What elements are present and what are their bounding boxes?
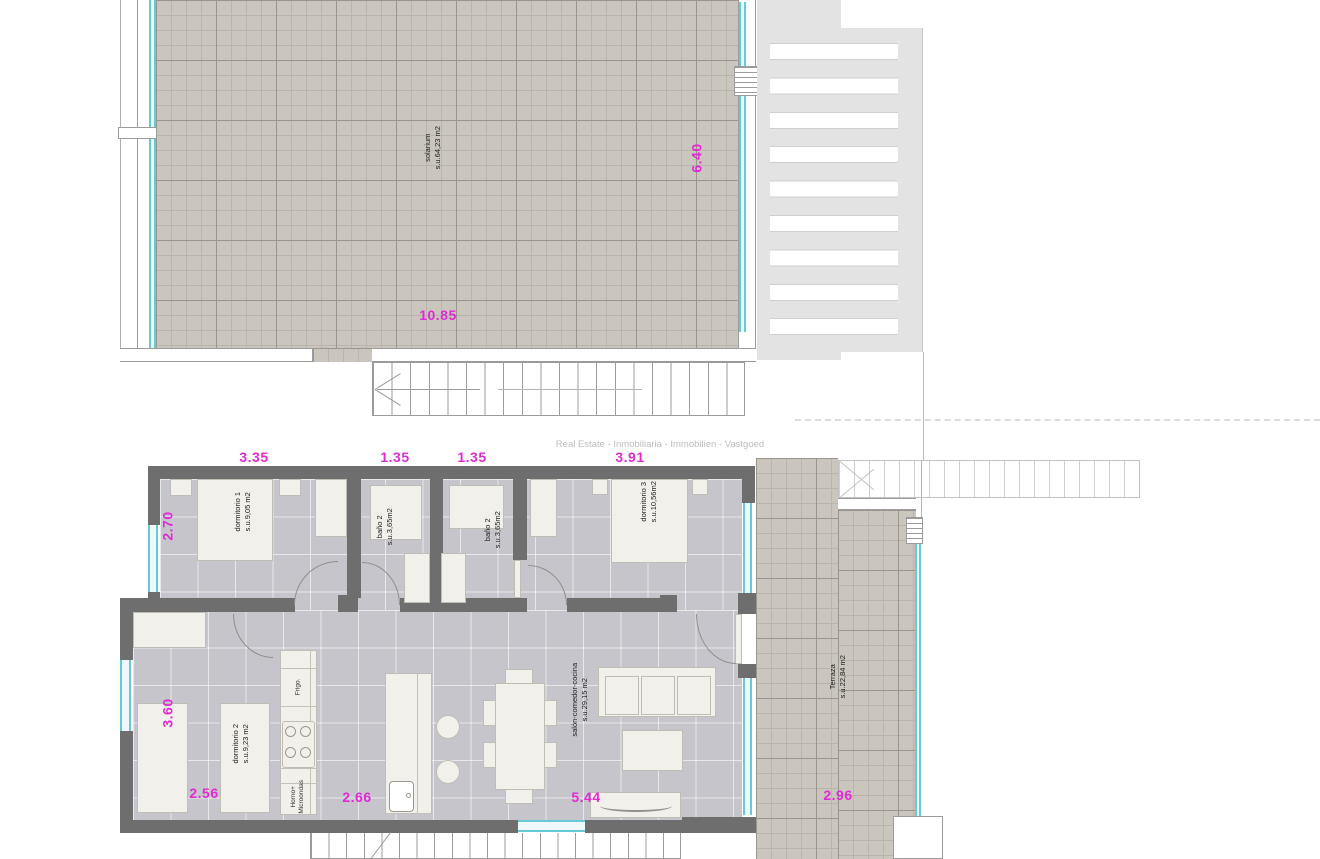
terraza-glass-rail <box>915 544 921 859</box>
stair-mid-line <box>498 389 642 390</box>
wall-bottom-a <box>120 820 518 833</box>
dining-chair-3 <box>544 700 557 726</box>
kitchen-divider-1 <box>280 668 317 669</box>
tv-screen-curve <box>600 800 672 812</box>
terraza-boundary-line <box>921 460 922 520</box>
wall-right-top <box>742 479 755 503</box>
door-leaf-terraza <box>735 614 742 664</box>
dorm1-wardrobe <box>315 479 347 537</box>
dim-dorm3-width: 3.91 <box>600 449 660 465</box>
exterior-staircase <box>838 460 1140 498</box>
dorm1-bed <box>197 479 273 561</box>
sofa-cushion-1 <box>605 676 639 715</box>
watermark-dashed-line <box>795 419 1320 421</box>
stair-arrow-shaft <box>377 389 480 390</box>
kitchen-divider-4 <box>280 783 317 784</box>
bath-right-shower <box>449 485 504 529</box>
dining-chair-1 <box>483 700 496 726</box>
terraza-door-jamb <box>906 517 923 544</box>
dining-table <box>495 683 545 790</box>
wall-left-lower-a <box>120 612 133 660</box>
wall-hall-c-end <box>660 595 677 612</box>
dorm2-bed-left <box>137 703 188 813</box>
dining-chair-4 <box>544 742 557 768</box>
wall-dorm1-bath <box>347 479 361 598</box>
wall-hall-a <box>120 598 295 612</box>
dorm3-nightstand-right <box>692 479 708 495</box>
plot-boundary-line <box>923 352 924 460</box>
window-dorm3 <box>743 503 752 593</box>
sofa-cushion-3 <box>677 676 711 715</box>
dorm3-nightstand-left <box>592 479 608 495</box>
pergola-slats <box>770 43 898 336</box>
bath-right-toilet <box>441 553 466 603</box>
hall-wardrobe <box>133 612 206 648</box>
bath-left-toilet <box>404 553 430 603</box>
hob-burner-3 <box>285 747 296 758</box>
floor-plan-canvas: solarium s.u.64,23 m2 6.40 10.85 Real Es… <box>0 0 1320 859</box>
wall-left-lower-b <box>120 731 133 833</box>
solarium-tile-step <box>312 348 372 362</box>
dim-bath-left-width: 1.35 <box>365 449 425 465</box>
island-edge <box>417 673 418 814</box>
sofa-cushion-2 <box>641 676 675 715</box>
dorm3-bed <box>611 479 688 563</box>
terraza-tiles-left <box>756 458 838 859</box>
wall-top <box>148 466 755 479</box>
door-leaf-bath2 <box>514 560 521 598</box>
terraza-tiles-right <box>838 510 916 859</box>
window-dorm1 <box>148 525 158 592</box>
solarium-left-glass <box>149 0 156 348</box>
solarium-tiled-deck <box>156 0 738 348</box>
window-salon <box>743 678 752 815</box>
dining-chair-2 <box>483 742 496 768</box>
terraza-landing-band <box>838 498 916 510</box>
bar-stool-2 <box>436 760 460 784</box>
sink-tap <box>406 793 411 798</box>
window-bottom <box>518 820 585 832</box>
hob-burner-2 <box>300 726 311 737</box>
solarium-outer-line <box>120 0 121 362</box>
bath-left-shower <box>370 485 422 540</box>
bar-stool-1 <box>436 715 460 739</box>
dim-dorm1-width: 3.35 <box>224 449 284 465</box>
wall-bottom-right-block <box>682 817 756 833</box>
dorm1-nightstand-right <box>279 479 301 496</box>
solarium-right-glass <box>739 2 746 332</box>
dorm3-wardrobe <box>530 479 557 537</box>
wall-bottom-b <box>585 820 682 833</box>
hob-burner-4 <box>300 747 311 758</box>
terraza-corner-box <box>893 816 943 859</box>
dorm2-bed-right <box>220 703 270 813</box>
solarium-wall-line <box>137 0 138 348</box>
solarium-wall-pier <box>118 127 157 139</box>
dining-chair-6 <box>505 789 533 804</box>
wall-left-upper-a <box>148 479 160 525</box>
dim-bath-right-width: 1.35 <box>442 449 502 465</box>
wall-bath-dorm3 <box>513 479 527 560</box>
watermark: Real Estate - Inmobiliaria - Immobilien … <box>555 438 765 451</box>
lower-staircase <box>310 833 681 859</box>
kitchen-divider-2 <box>280 706 317 707</box>
kitchen-divider-3 <box>280 768 317 769</box>
wall-right-block2 <box>738 664 756 678</box>
dorm1-nightstand-left <box>170 479 192 496</box>
hob-burner-1 <box>285 726 296 737</box>
solarium-bottom-wall-band <box>120 348 756 362</box>
wall-right-block1 <box>738 593 756 614</box>
dining-chair-5 <box>505 669 533 684</box>
window-dorm2 <box>120 660 131 731</box>
coffee-table <box>622 730 683 771</box>
